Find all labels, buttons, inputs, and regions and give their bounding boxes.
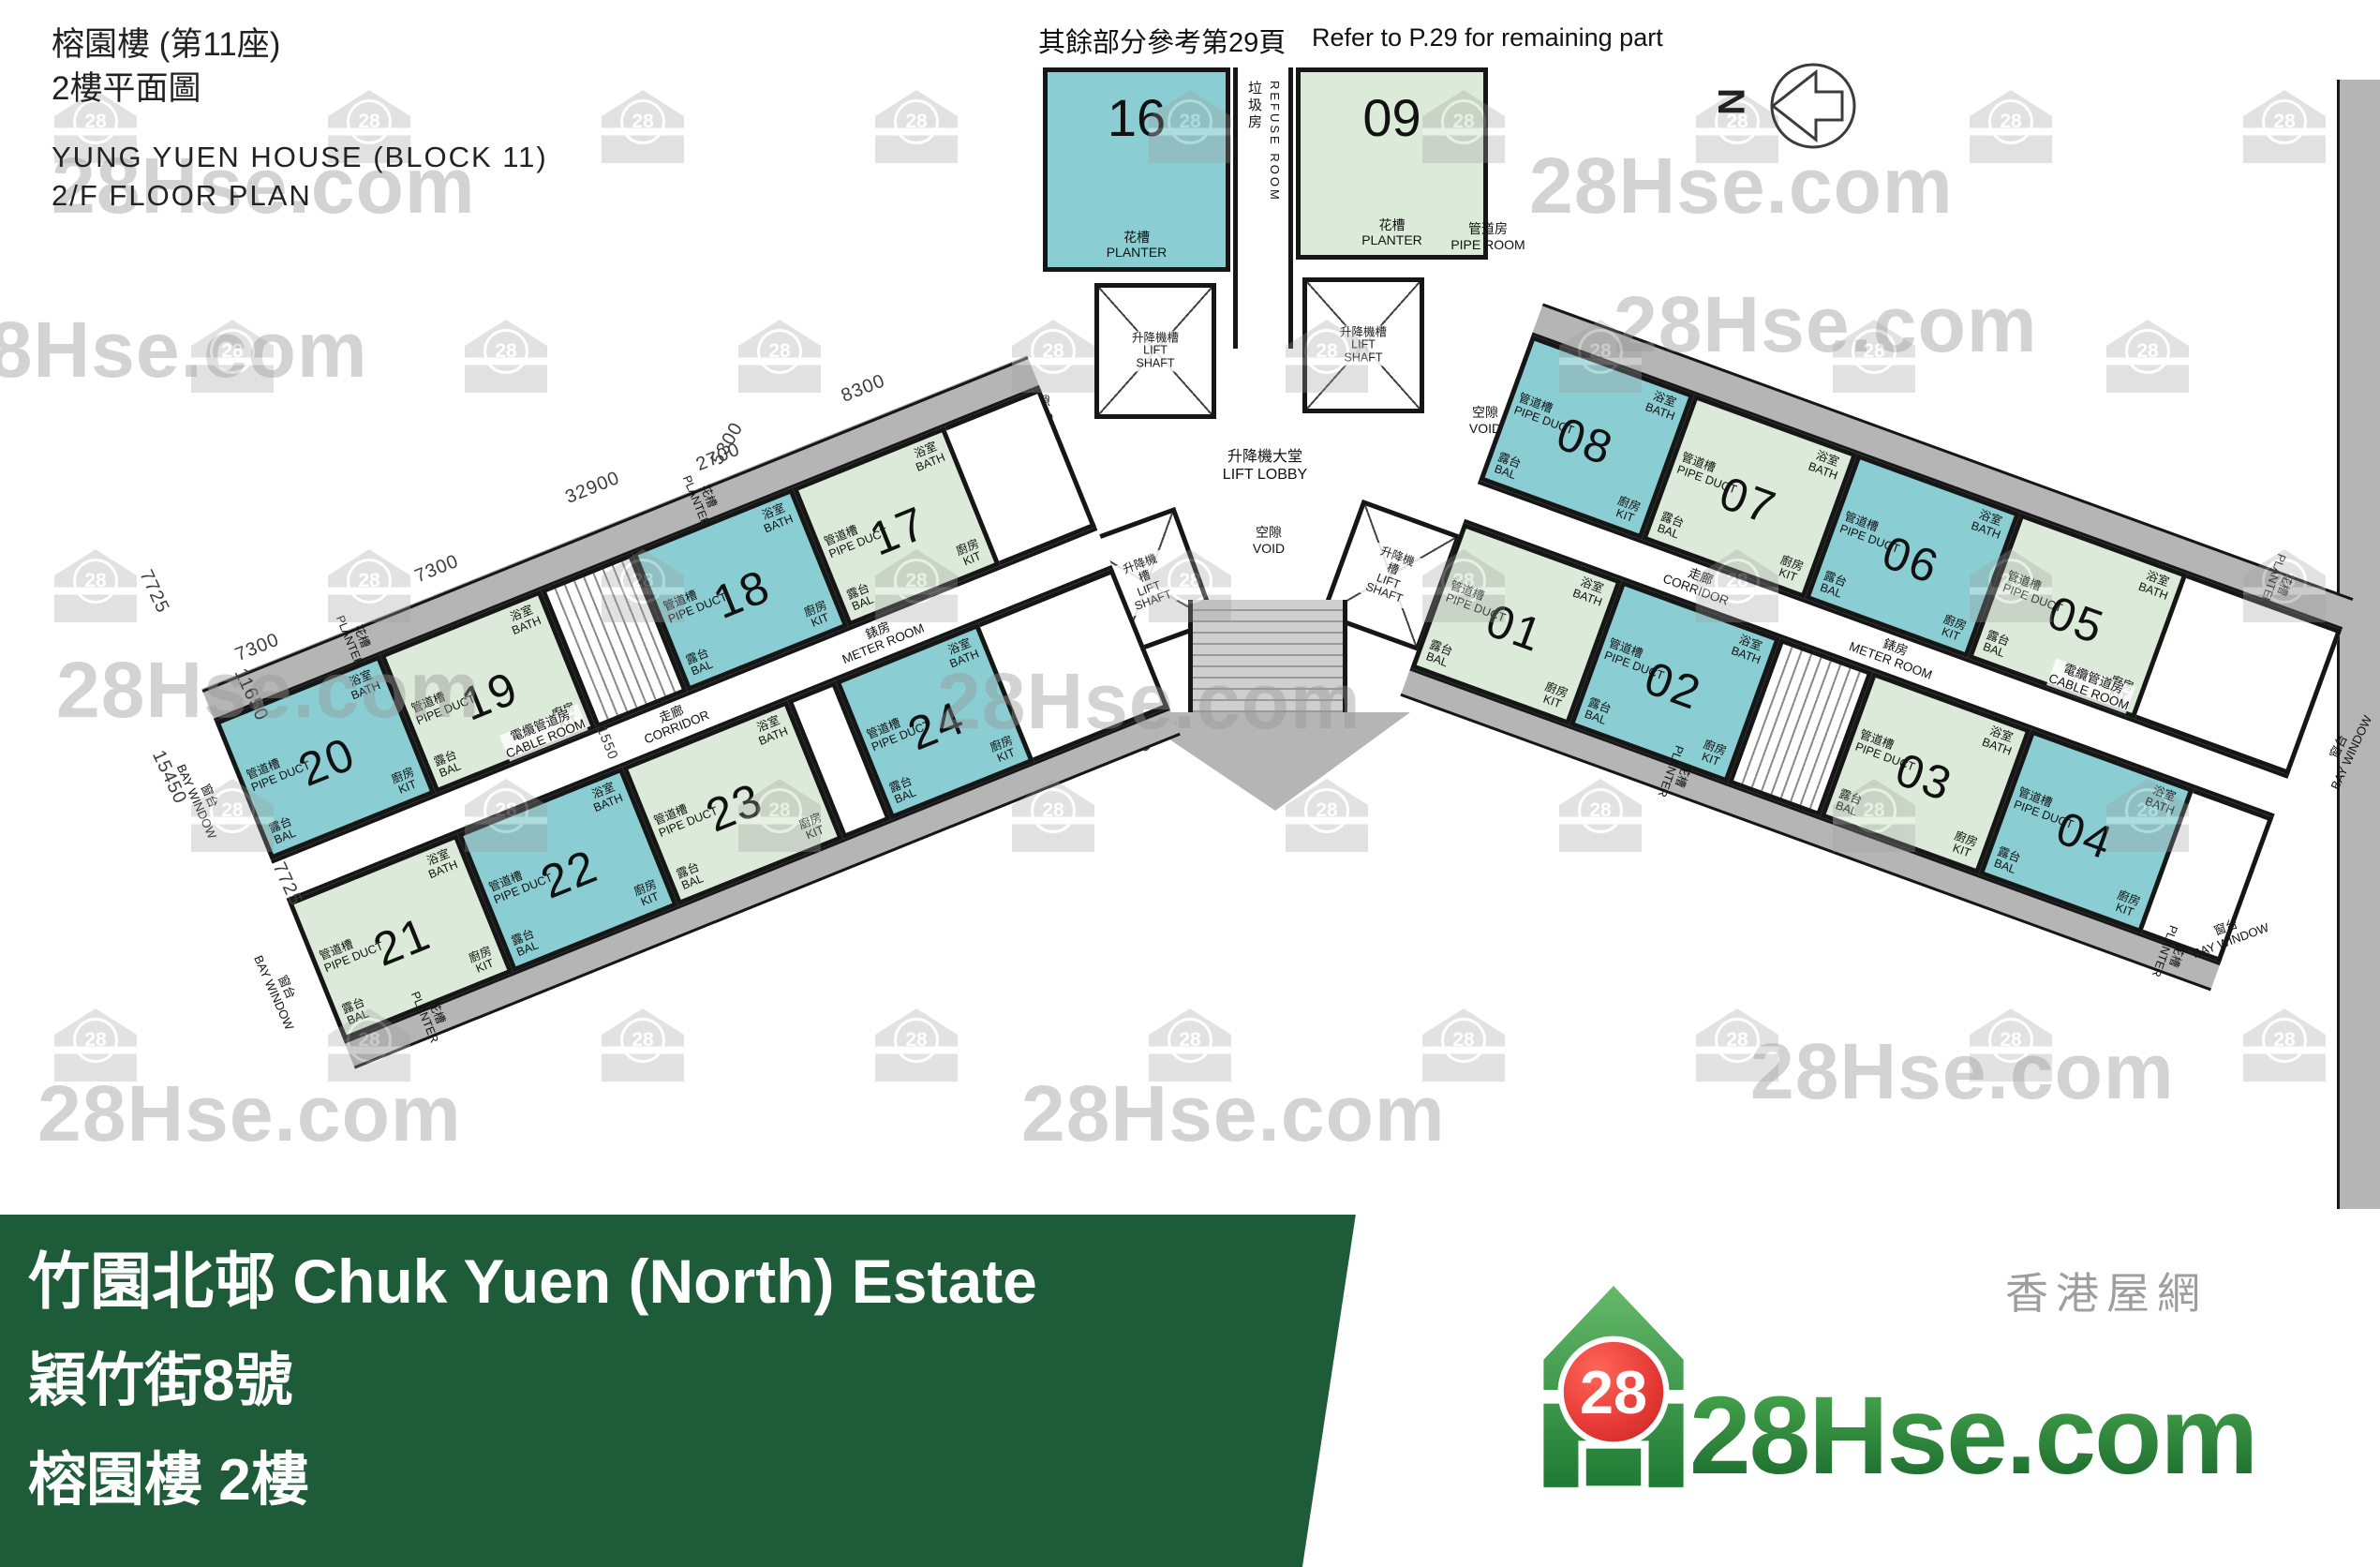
kitchen-label: 廚房 KIT [989, 734, 1019, 767]
lift-shaft: 升降機槽 LIFT SHAFT [1302, 277, 1424, 413]
kitchen-label: 廚房 KIT [467, 945, 498, 978]
kitchen-label: 廚房 KIT [1937, 613, 1968, 645]
logo-badge-number: 28 [1580, 1358, 1647, 1426]
bath-label: 浴室 BATH [757, 500, 795, 536]
balcony-label: 露台 BAL [1655, 510, 1686, 542]
balcony-label: 露台 BAL [684, 647, 715, 679]
kitchen-label: 廚房 KIT [632, 878, 663, 911]
void-label-en: VOID [1229, 541, 1308, 557]
kitchen-label: 廚房 KIT [1612, 494, 1643, 526]
lift-shaft-label-zh: 升降機槽 [1129, 332, 1182, 345]
lift-shaft-label-zh: 升降機槽 [1337, 326, 1390, 339]
void-label: 空隙 VOID [1229, 525, 1308, 557]
floor-plan-page: 16 花槽 PLANTER 垃圾房 REFUSE ROOM 09 花槽 PLAN… [0, 0, 2380, 1567]
balcony-label: 露台 BAL [845, 582, 876, 615]
compass: N [1715, 54, 1874, 157]
unit-number: 09 [1301, 87, 1483, 148]
bath-label: 浴室 BATH [505, 603, 543, 638]
kitchen-label: 廚房 KIT [802, 599, 833, 632]
pipe-room-label-zh: 管道房 [1432, 221, 1544, 237]
balcony-label: 露台 BAL [340, 996, 371, 1029]
compass-icon [1752, 54, 1874, 157]
bath-label: 浴室 BATH [1570, 575, 1608, 609]
bath-label: 浴室 BATH [1980, 724, 2017, 758]
compass-north-label: N [1709, 88, 1751, 115]
logo-site-name: 28Hse.com [1689, 1372, 2256, 1500]
balcony-label: 露台 BAL [1423, 638, 1454, 670]
balcony-label: 露台 BAL [887, 775, 918, 808]
lift-shaft: 升降機槽 LIFT SHAFT [1094, 283, 1216, 419]
dimension-32900: 32900 [562, 468, 623, 509]
pipe-room-label-en: PIPE ROOM [1432, 237, 1544, 253]
lift-shaft-label-en: LIFT SHAFT [1337, 339, 1390, 366]
balcony-label: 露台 BAL [432, 748, 463, 781]
bath-label: 浴室 BATH [910, 440, 947, 475]
lift-lobby-label-zh: 升降機大堂 [1181, 448, 1349, 466]
plan-cutoff-strip [2337, 80, 2380, 1209]
remaining-part-note-zh: 其餘部分參考第29頁 [1038, 21, 1286, 60]
balcony-label: 露台 BAL [510, 927, 541, 960]
lift-shaft-label: 升降機槽 LIFT SHAFT [1359, 542, 1421, 608]
bath-label: 浴室 BATH [1730, 633, 1767, 667]
dimension-1550: 1550 [593, 724, 621, 762]
bath-label: 浴室 BATH [1970, 507, 2007, 542]
balcony-label: 露台 BAL [267, 815, 298, 848]
pipe-room-label: 管道房 PIPE ROOM [1432, 221, 1544, 253]
void-label-zh: 空隙 [1229, 525, 1308, 541]
bath-label: 浴室 BATH [2136, 568, 2174, 603]
lift-shaft-label: 升降機槽 LIFT SHAFT [1335, 325, 1391, 366]
refuse-room-label-zh: 垃圾房 [1244, 81, 1264, 349]
kitchen-label: 廚房 KIT [1697, 738, 1728, 769]
dimension-8300: 8300 [839, 370, 889, 407]
planter-label: 花槽 PLANTER [1048, 230, 1226, 260]
remaining-part-note-en: Refer to P.29 for remaining part [1312, 23, 1663, 52]
plan-title-block: 榕園樓 (第11座) 2樓平面圖 YUNG YUEN HOUSE (BLOCK … [52, 22, 548, 216]
balcony-label: 露台 BAL [1582, 696, 1613, 728]
balcony-label: 露台 BAL [1991, 845, 2022, 877]
street-address: 穎竹街8號 [28, 1333, 292, 1417]
kitchen-label: 廚房 KIT [1539, 680, 1569, 712]
refuse-room-label-en: REFUSE ROOM [1268, 81, 1282, 349]
bath-label: 浴室 BATH [1807, 448, 1844, 483]
block-floor: 榕園樓 2樓 [28, 1432, 309, 1516]
estate-name: 竹園北邨 Chuk Yuen (North) Estate [28, 1231, 1037, 1321]
listing-banner: 竹園北邨 Chuk Yuen (North) Estate 穎竹街8號 榕園樓 … [0, 1215, 1368, 1567]
right-wing: 花槽 PLANTER 08 浴室 BATH 管道槽 PIPE DUCT 露台 B… [1399, 304, 2353, 995]
refuse-room: 垃圾房 REFUSE ROOM [1233, 67, 1293, 349]
lift-lobby-label-en: LIFT LOBBY [1181, 466, 1349, 484]
balcony-label: 露台 BAL [1833, 787, 1864, 819]
unit-number: 16 [1048, 87, 1226, 148]
dimension-7300: 7300 [412, 551, 463, 588]
unit-16: 16 花槽 PLANTER [1043, 67, 1230, 272]
kitchen-label: 廚房 KIT [1775, 554, 1806, 586]
kitchen-label: 廚房 KIT [1948, 829, 1979, 861]
core-staircase [1188, 600, 1347, 712]
plan-title-en-line2: 2/F FLOOR PLAN [52, 176, 548, 216]
dimension-7725: 7725 [135, 567, 173, 618]
balcony-label: 露台 BAL [675, 860, 706, 893]
planter-label: 花槽 PLANTER [2256, 552, 2299, 612]
house-logo-icon: 28 [1534, 1276, 1693, 1501]
bath-label: 浴室 BATH [345, 667, 382, 703]
plan-title-en-line1: YUNG YUEN HOUSE (BLOCK 11) [52, 138, 548, 177]
kitchen-label: 廚房 KIT [797, 811, 828, 843]
kitchen-label: 廚房 KIT [955, 537, 986, 570]
kitchen-label: 廚房 KIT [390, 766, 421, 798]
bath-label: 浴室 BATH [1644, 389, 1681, 424]
plan-title-zh-line1: 榕園樓 (第11座) [52, 22, 548, 67]
lift-shaft-label: 升降機槽 LIFT SHAFT [1127, 331, 1183, 371]
balcony-label: 露台 BAL [1818, 570, 1849, 602]
site-logo: 28 香港屋網 28Hse.com [1513, 1215, 2380, 1567]
planter-label-zh: 花槽 [1048, 230, 1226, 245]
bay-window-label: 窗台 BAY WINDOW [250, 948, 308, 1032]
planter-label-en: PLANTER [1048, 245, 1226, 260]
left-wing: 7300 7300 32900 2700 8300 花槽 PLANTER 花槽 … [182, 306, 1176, 1057]
plan-title-zh-line2: 2樓平面圖 [52, 67, 548, 111]
bath-label: 浴室 BATH [588, 780, 625, 815]
bath-label: 浴室 BATH [944, 635, 981, 671]
logo-chinese-name: 香港屋網 [2005, 1260, 2208, 1321]
lift-lobby-label: 升降機大堂 LIFT LOBBY [1181, 448, 1349, 484]
lift-shaft-label-en: LIFT SHAFT [1129, 345, 1182, 371]
bath-label: 浴室 BATH [422, 846, 459, 882]
balcony-label: 露台 BAL [1492, 451, 1523, 483]
balcony-label: 露台 BAL [1980, 629, 2011, 661]
bath-label: 浴室 BATH [752, 713, 790, 749]
kitchen-label: 廚房 KIT [2111, 888, 2142, 920]
bath-label: 浴室 BATH [2143, 783, 2180, 818]
